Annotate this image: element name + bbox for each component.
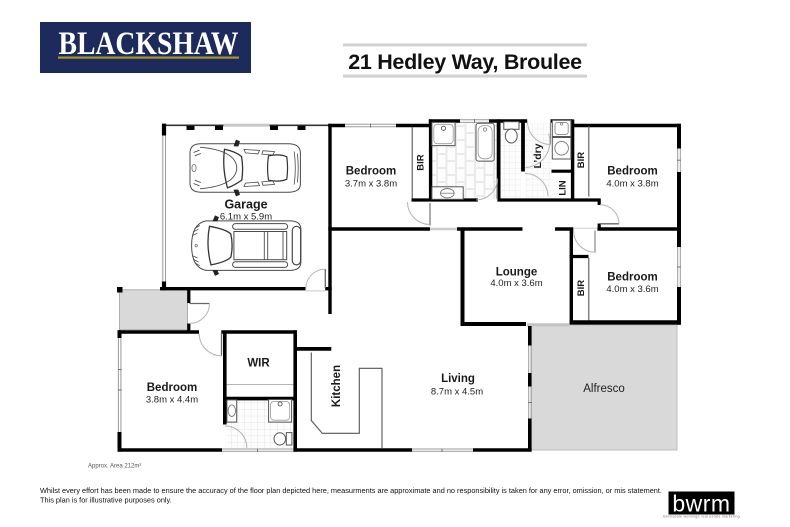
svg-text:WIR: WIR <box>247 358 270 370</box>
svg-text:BIR: BIR <box>576 280 587 297</box>
svg-text:Garage: Garage <box>224 198 267 212</box>
svg-text:4.0m x 3.6m: 4.0m x 3.6m <box>490 278 542 289</box>
svg-text:BIR: BIR <box>416 154 427 171</box>
svg-text:Lounge: Lounge <box>496 267 538 279</box>
svg-text:Alfresco: Alfresco <box>583 383 625 395</box>
svg-text:21 Hedley Way, Broulee: 21 Hedley Way, Broulee <box>348 50 582 74</box>
svg-text:bwrm: bwrm <box>672 491 730 517</box>
svg-text:LIN: LIN <box>558 180 569 195</box>
svg-text:4.0m x 3.6m: 4.0m x 3.6m <box>606 284 658 295</box>
svg-text:Whilst every effort has been m: Whilst every effort has been made to ens… <box>40 486 662 495</box>
svg-text:L’dry: L’dry <box>532 143 544 168</box>
svg-text:Bedroom: Bedroom <box>346 166 396 178</box>
svg-text:8.7m x 4.5m: 8.7m x 4.5m <box>431 387 483 398</box>
svg-text:3.8m x 4.4m: 3.8m x 4.4m <box>146 395 198 406</box>
svg-text:BIR: BIR <box>576 152 587 169</box>
svg-text:Bedroom: Bedroom <box>147 382 197 394</box>
svg-text:This plan is for illustrative: This plan is for illustrative purposes o… <box>40 495 172 504</box>
svg-text:Kitchen: Kitchen <box>331 365 343 407</box>
svg-text:Living: Living <box>441 373 475 385</box>
svg-text:4.0m x 3.8m: 4.0m x 3.8m <box>606 179 658 190</box>
svg-text:Bedroom: Bedroom <box>607 272 657 284</box>
svg-text:Approx. Area 212m²: Approx. Area 212m² <box>88 464 141 470</box>
svg-text:bairnsdale wodonga real estate: bairnsdale wodonga real estate marketing <box>663 515 740 519</box>
svg-text:3.7m x 3.8m: 3.7m x 3.8m <box>345 179 397 190</box>
svg-text:Bedroom: Bedroom <box>607 166 657 178</box>
svg-text:6.1m x 5.9m: 6.1m x 5.9m <box>220 212 272 223</box>
